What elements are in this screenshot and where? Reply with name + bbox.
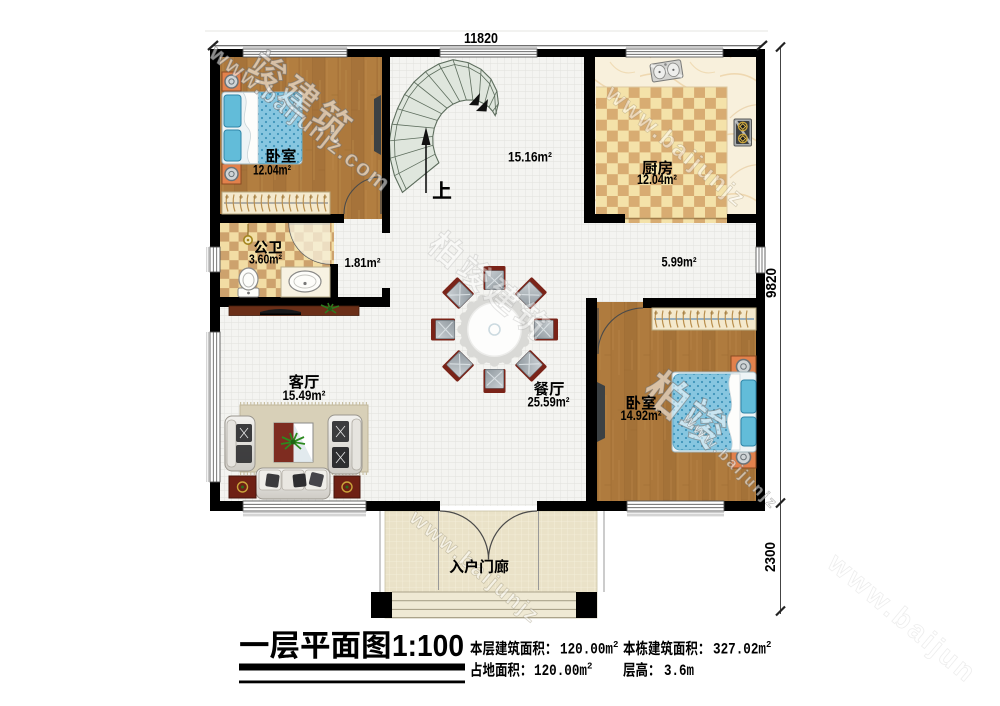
svg-text:3.6m: 3.6m [664, 662, 694, 680]
svg-text:120.00m: 120.00m [560, 641, 613, 659]
svg-text:2: 2 [613, 640, 618, 650]
svg-text:12.04m²: 12.04m² [637, 172, 677, 187]
svg-text:14.92m²: 14.92m² [621, 408, 662, 423]
svg-text:5.99m²: 5.99m² [662, 255, 697, 270]
svg-text:327.02m: 327.02m [713, 641, 766, 659]
svg-text:1.81m²: 1.81m² [345, 255, 382, 270]
svg-text:12.04m²: 12.04m² [253, 163, 291, 178]
svg-text:1:100: 1:100 [392, 628, 464, 663]
svg-text:9820: 9820 [764, 268, 780, 298]
svg-text:2300: 2300 [763, 542, 779, 572]
svg-text:11820: 11820 [464, 31, 498, 47]
svg-text:25.59m²: 25.59m² [528, 395, 570, 410]
svg-text:2: 2 [766, 640, 771, 650]
svg-text:3.60m²: 3.60m² [249, 253, 282, 267]
svg-text:2: 2 [587, 662, 592, 672]
svg-text:15.16m²: 15.16m² [508, 150, 552, 165]
svg-text:15.49m²: 15.49m² [283, 388, 326, 403]
svg-text:120.00m: 120.00m [534, 662, 587, 680]
